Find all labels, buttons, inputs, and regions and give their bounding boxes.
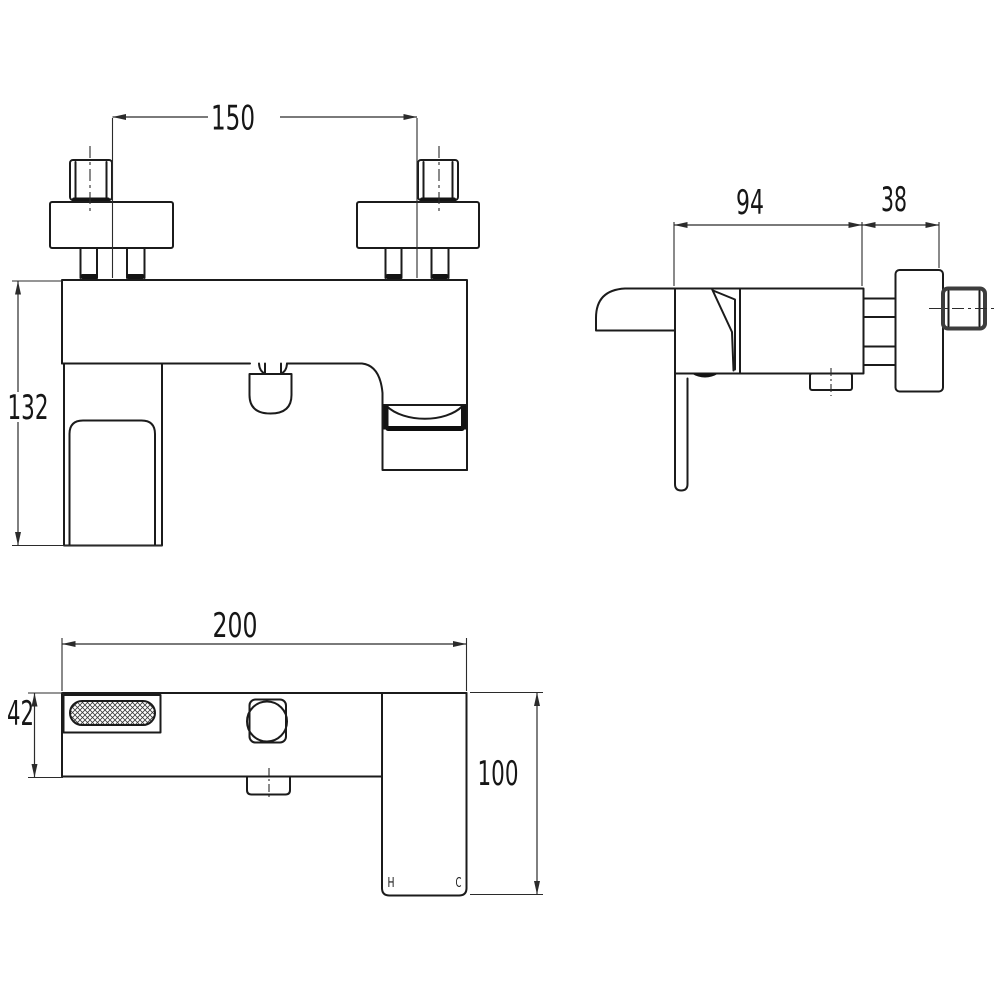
dimension-38: 38: [862, 180, 939, 268]
dimension-94: 94: [674, 183, 862, 286]
handle-front-face: [383, 405, 468, 430]
dim-150-text: 150: [211, 99, 255, 139]
hot-label: H: [388, 876, 395, 891]
aerator-hatch: [70, 701, 155, 725]
dim-94-text: 94: [736, 183, 764, 223]
shower-outlet-profile: [810, 368, 852, 396]
right-wall-plate: [357, 202, 479, 248]
left-wall-plate: [50, 202, 173, 248]
union-adapter-profile: [864, 299, 896, 366]
spout-outlet-plan: [64, 695, 161, 733]
technical-drawing: 150 132: [0, 0, 1000, 1000]
dimension-42: 42: [7, 693, 63, 778]
dim-200-text: 200: [213, 606, 258, 646]
left-inlet-nut: [70, 160, 112, 202]
diverter-knob-front: [250, 364, 292, 414]
dimension-200: 200: [62, 606, 467, 691]
dim-38-text: 38: [881, 180, 907, 220]
dimension-100: 100: [470, 693, 543, 895]
cold-label: C: [456, 876, 462, 891]
bottom-view: H C 200 42 100: [7, 606, 543, 896]
cartridge-body-profile: [740, 289, 864, 374]
diverter-tab-plan: [247, 768, 290, 800]
side-view: 94 38: [596, 180, 998, 491]
drawing-sheet: 150 132: [0, 0, 1000, 1000]
dim-132-text: 132: [8, 388, 49, 428]
wall-plate-profile: [896, 270, 944, 392]
spout-column-front: [64, 364, 162, 546]
front-view: 150 132: [8, 99, 480, 546]
diverter-plan: [247, 700, 287, 743]
dim-100-text: 100: [478, 754, 519, 794]
dimension-132: 132: [8, 281, 164, 546]
lever-profile: [675, 374, 719, 491]
dim-42-text: 42: [7, 694, 34, 734]
spout-profile: [596, 289, 675, 331]
right-inlet-nut: [418, 160, 458, 202]
dimension-150: 150: [113, 99, 418, 279]
handle-block-profile: [675, 289, 740, 374]
